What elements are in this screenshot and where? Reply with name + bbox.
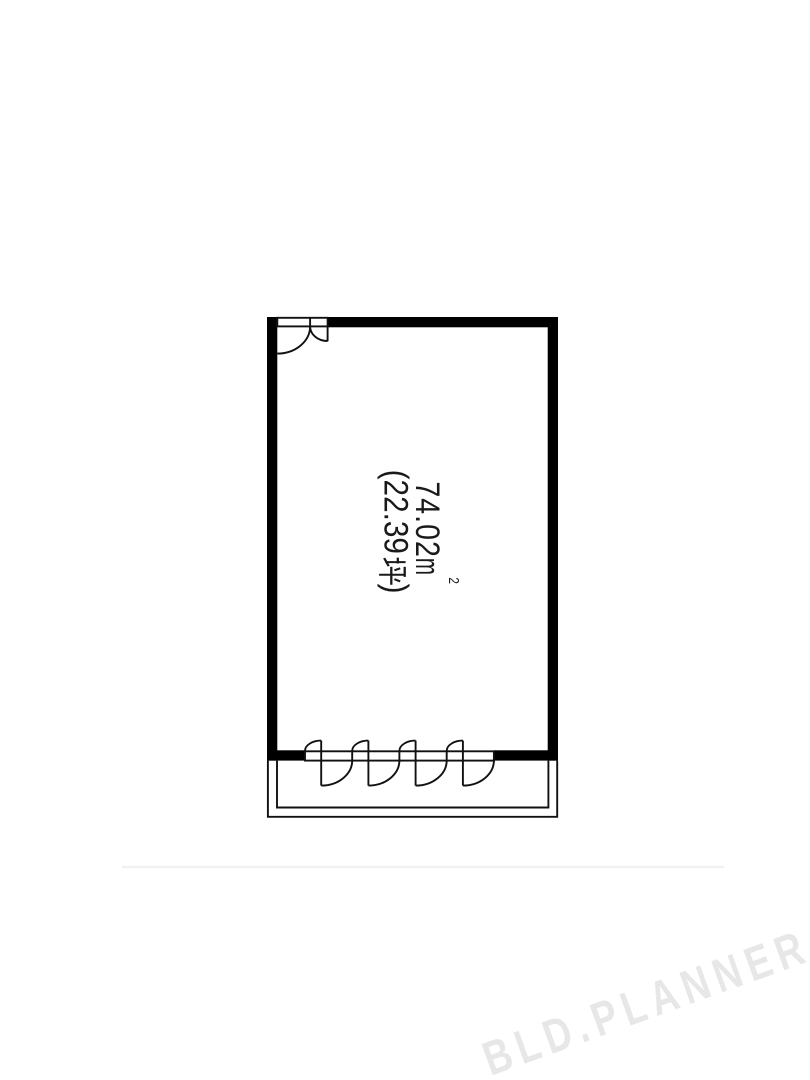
svg-text:m: m — [409, 558, 447, 575]
svg-text:2: 2 — [446, 577, 462, 584]
svg-text:(22.39: (22.39 — [377, 470, 415, 554]
svg-text:): ) — [377, 584, 415, 594]
svg-text:BLD.PLANNER: BLD.PLANNER — [476, 920, 810, 1080]
